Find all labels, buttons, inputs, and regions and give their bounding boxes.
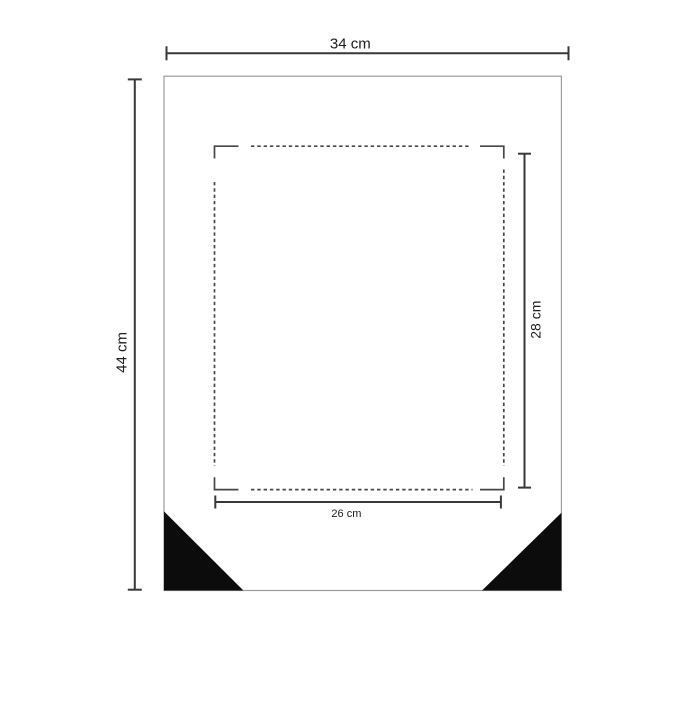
svg-text:26 cm: 26 cm [331, 508, 361, 520]
svg-text:44 cm: 44 cm [113, 332, 130, 373]
svg-text:28 cm: 28 cm [528, 301, 544, 339]
svg-text:34 cm: 34 cm [330, 36, 371, 53]
